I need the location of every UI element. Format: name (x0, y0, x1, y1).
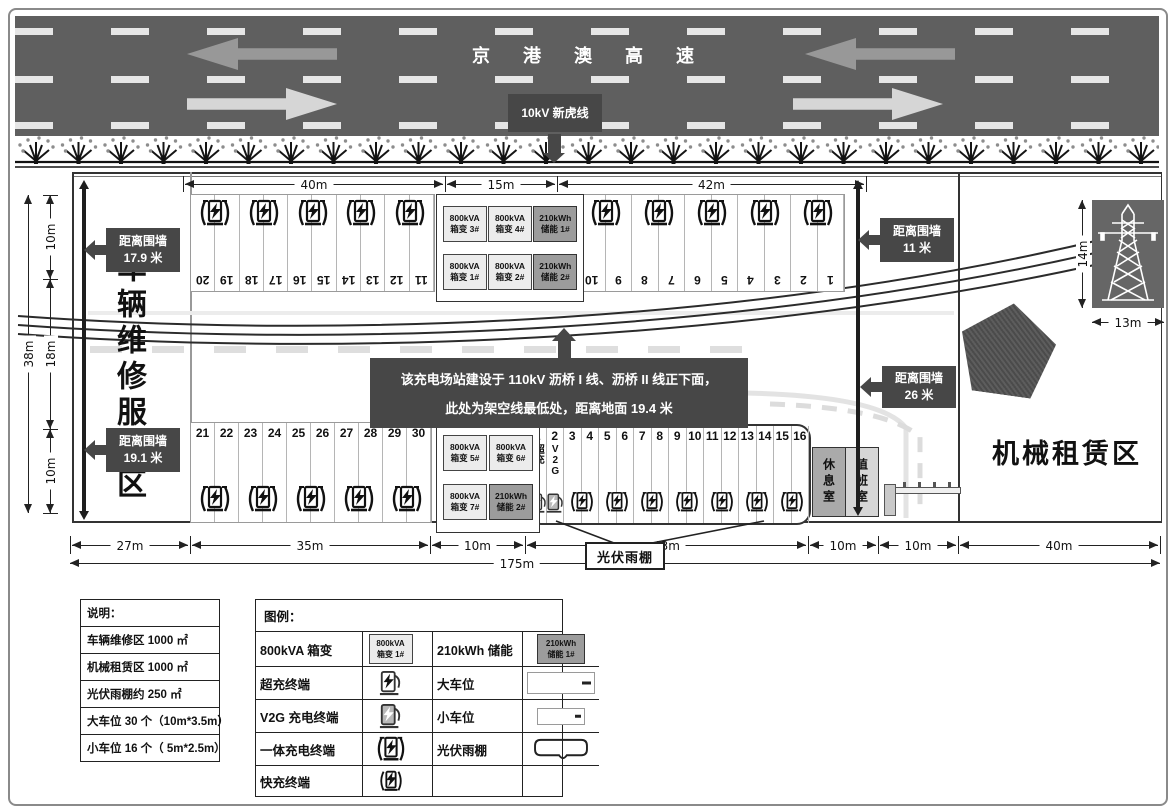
zone-divider-rental (958, 172, 960, 522)
dim-tower-width: 13m (1092, 322, 1164, 323)
notes-title: 说明： (81, 600, 219, 627)
legend-icon-cell (362, 700, 418, 733)
stall-number: 27 (340, 426, 353, 440)
stall-number: 16 (793, 429, 806, 443)
charger-icon-holder (569, 489, 595, 520)
canopy-label-text: 光伏雨棚 (597, 547, 653, 566)
v2g-charger-icon (546, 491, 565, 515)
charger-icon-holder (801, 198, 835, 233)
tree-icon (443, 136, 479, 164)
stall-number: 7 (639, 429, 646, 443)
dim-bottom-6: 40m (960, 545, 1158, 546)
tree-icon (698, 136, 734, 164)
stall-number: 13 (741, 429, 754, 443)
transmission-tower-box (1092, 200, 1164, 308)
charger-icon-holder (748, 198, 782, 233)
integrated-charger-icon (198, 198, 232, 228)
dim-label: 40m (1040, 539, 1079, 553)
equipment-label-bottom: 储能 1# (541, 224, 570, 235)
stall-number: 29 (388, 426, 401, 440)
v2g-charger-icon-holder (546, 491, 565, 520)
wall-distance-arrow-icon (860, 377, 884, 397)
parking-row-20-11: 20191817161514131211 (190, 194, 435, 292)
stall-number: 2 (551, 429, 558, 443)
dim-label: 38m (22, 336, 36, 373)
integrated-charger-icon (247, 198, 281, 228)
dim-bottom-5: 10m (880, 545, 956, 546)
tree-icon (61, 136, 97, 164)
integrated-charger-icon (393, 198, 427, 228)
equipment-label-top: 800kVA (450, 213, 480, 224)
stall-number: 26 (316, 426, 329, 440)
power-line-label: 10kV 新虎线 (508, 94, 602, 132)
stall-number: 21 (196, 426, 209, 440)
integrated-charger-icon (695, 198, 729, 228)
dim-top-40m: 40m (185, 184, 443, 185)
stall-type-label: V2G (550, 444, 560, 477)
transmission-tower-icon (1092, 200, 1164, 308)
dim-left-38m: 38m (28, 195, 29, 513)
power-line-label-pointer (548, 134, 561, 154)
integrated-charger-icon (198, 484, 232, 514)
dim-label: 10m (44, 219, 58, 256)
stall-number: 12 (390, 273, 403, 287)
stall-number: 14 (758, 429, 771, 443)
traffic-arrow-left-icon (805, 38, 955, 70)
dim-bottom-4: 10m (810, 545, 876, 546)
wall-distance-label-2: 距离围墙 19.1 米 (106, 428, 180, 472)
dim-label: 10m (899, 539, 938, 553)
tree-row (15, 134, 1159, 172)
machinery-area-label: 机械租赁区 (992, 432, 1142, 471)
dim-label: 40m (295, 178, 334, 192)
equipment-label-bottom: 箱变 3# (450, 224, 479, 235)
site-boundary-left (72, 172, 74, 522)
dim-label: 42m (692, 178, 731, 192)
wall-distance-arrow-icon (84, 440, 108, 460)
legend-icon-cell (362, 667, 418, 700)
lane-marking (15, 76, 1159, 83)
dim-tick (43, 513, 58, 514)
charger-icon-holder (709, 489, 735, 520)
dim-label: 18m (44, 336, 58, 373)
integrated-charger-icon (801, 198, 835, 228)
charger-icon-holder (390, 484, 424, 519)
annotation-arrow-tip (552, 328, 576, 341)
tree-icon (783, 136, 819, 164)
stall-number: 8 (641, 273, 648, 287)
dim-top-15m: 15m (447, 184, 555, 185)
dim-top-42m: 42m (559, 184, 864, 185)
tree-icon (1081, 136, 1117, 164)
rest-room-building: 休息室 (812, 447, 846, 517)
legend-spacer (418, 700, 432, 733)
charger-icon-holder (642, 198, 676, 233)
legend-label (432, 766, 522, 796)
tree-icon (401, 136, 437, 164)
site-plan-canvas: 京 港 澳 高 速 10kV 新虎线 (0, 0, 1174, 812)
stall-number: 11 (415, 273, 428, 287)
stall-number: 5 (721, 273, 728, 287)
stall-number: 22 (220, 426, 233, 440)
tree-icon (273, 136, 309, 164)
legend-label: 小车位 (432, 700, 522, 733)
equipment-area-top: 800kVA箱变 3#800kVA箱变 4#210kWh储能 1#800kVA箱… (436, 194, 584, 302)
dim-tick (866, 176, 867, 192)
tree-icon (1038, 136, 1074, 164)
canopy-label: 光伏雨棚 (585, 542, 665, 570)
power-line-label-pointer-tip (543, 153, 565, 163)
dim-label: 175m (494, 557, 541, 571)
stall-number: 7 (668, 273, 675, 287)
tree-icon (146, 136, 182, 164)
equipment-label-bottom: 箱变 2# (496, 272, 525, 283)
annotation-line-1: 该充电场站建设于 110kV 沥桥 I 线、沥桥 II 线正下面， (370, 369, 748, 388)
dim-left-inner-18m: 18m (50, 279, 51, 429)
large-parking-space-icon (527, 672, 595, 694)
equipment-label-top: 800kVA (450, 442, 480, 453)
dim-bottom-3: 43m (527, 545, 806, 546)
small-parking-space-icon (537, 708, 585, 725)
label-line: 距离围墙 (119, 233, 167, 250)
charger-icon-holder (294, 484, 328, 519)
tree-icon (316, 136, 352, 164)
equipment-label-top: 210kWh (495, 491, 527, 502)
stall-number: 8 (656, 429, 663, 443)
integrated-charger-icon (589, 198, 623, 228)
integrated-charger-icon (296, 198, 330, 228)
dim-bottom-1: 35m (192, 545, 428, 546)
charger-icon-holder (639, 489, 665, 520)
wall-distance-arrow-icon (84, 240, 108, 260)
stall-number: 2 (800, 273, 807, 287)
tree-icon (741, 136, 777, 164)
charger-icon-holder (695, 198, 729, 233)
highway-title: 京 港 澳 高 速 (430, 42, 750, 68)
aisle-edge-line (88, 311, 954, 315)
integrated-charger-icon (674, 489, 700, 515)
stall-number: 10 (585, 273, 598, 287)
transformer-sample-box: 800kVA箱变 1# (369, 634, 413, 664)
gate-barrier-rail (895, 487, 961, 494)
charger-icon-holder (344, 198, 378, 233)
stall-number: 19 (220, 273, 233, 287)
stall-number: 11 (706, 429, 719, 443)
tree-icon (868, 136, 904, 164)
equipment-label-bottom: 箱变 6# (497, 453, 526, 464)
legend-spacer (418, 733, 432, 766)
notes-row: 机械租赁区 1000 ㎡ (81, 654, 219, 681)
legend-icon-cell (522, 766, 599, 796)
transformer-box: 800kVA箱变 5# (443, 435, 487, 471)
legend-label: 800kVA 箱变 (256, 632, 362, 667)
dim-label: 27m (111, 539, 150, 553)
notes-row: 车辆维修区 1000 ㎡ (81, 627, 219, 654)
equipment-label-top: 800kVA (450, 261, 480, 272)
legend-label: V2G 充电终端 (256, 700, 362, 733)
stall-number: 17 (269, 273, 282, 287)
stall-number: 4 (747, 273, 754, 287)
charger-icon-holder (779, 489, 805, 520)
legend-icon-cell (522, 700, 599, 733)
integrated-charger-icon (642, 198, 676, 228)
equipment-label-top: 800kVA (495, 213, 525, 224)
legend-label: 快充终端 (256, 766, 362, 796)
stall-number: 14 (342, 273, 355, 287)
dim-label: 10m (458, 539, 497, 553)
stall-number: 15 (317, 273, 330, 287)
stall-number: 6 (621, 429, 628, 443)
v2g-charger-icon (379, 702, 403, 730)
annotation-arrow (558, 340, 571, 359)
stall-number: 24 (268, 426, 281, 440)
stall-number: 6 (694, 273, 701, 287)
annotation-line-2: 此处为架空线最低处，距离地面 19.4 米 (370, 398, 748, 417)
charger-icon-holder (296, 198, 330, 233)
gate-rail-post (948, 482, 951, 488)
label-line: 11 米 (903, 240, 931, 257)
transformer-box: 800kVA箱变 4# (488, 206, 532, 242)
stall-number: 20 (196, 273, 209, 287)
stall-number: 3 (774, 273, 781, 287)
equipment-label-top: 210kWh (539, 213, 571, 224)
tree-icon (358, 136, 394, 164)
integrated-charger-icon (748, 198, 782, 228)
stall-number: 18 (245, 273, 258, 287)
equipment-label-bottom: 箱变 4# (496, 224, 525, 235)
wall-distance-label-1: 距离围墙 17.9 米 (106, 228, 180, 272)
integrated-charger-icon (246, 484, 280, 514)
equipment-label-top: 800kVA (450, 491, 480, 502)
equipment-label-bottom: 箱变 5# (451, 453, 480, 464)
charger-icon-holder (247, 198, 281, 233)
storage-box: 210kWh储能 1# (533, 206, 577, 242)
dim-bottom-2: 10m (432, 545, 523, 546)
tree-icon (1123, 136, 1159, 164)
dim-tick (1160, 536, 1161, 554)
tree-icon (911, 136, 947, 164)
legend-label: 210kWh 储能 (432, 632, 522, 667)
dim-left-inner-10m: 10m (50, 429, 51, 513)
power-line-label-text: 10kV 新虎线 (521, 105, 588, 122)
integrated-charger-icon (744, 489, 770, 515)
legend-title: 图例： (256, 600, 562, 632)
stall-number: 12 (723, 429, 736, 443)
legend-label: 超充终端 (256, 667, 362, 700)
charger-icon-holder (198, 484, 232, 519)
label-line: 距离围墙 (893, 223, 941, 240)
traffic-arrow-right-icon (187, 88, 337, 120)
rest-room-label: 休息室 (821, 458, 838, 506)
notes-table: 说明： 车辆维修区 1000 ㎡机械租赁区 1000 ㎡光伏雨棚约 250 ㎡大… (80, 599, 220, 762)
station-annotation: 该充电场站建设于 110kV 沥桥 I 线、沥桥 II 线正下面， 此处为架空线… (370, 358, 748, 428)
tree-icon (571, 136, 607, 164)
legend-spacer (418, 667, 432, 700)
stall-number: 1 (827, 273, 834, 287)
stall-number: 25 (292, 426, 305, 440)
tree-icon (18, 136, 54, 164)
aisle-center-dashed-line (90, 346, 750, 353)
dim-label: 13m (1109, 316, 1148, 330)
stall-number: 9 (615, 273, 622, 287)
tree-icon (613, 136, 649, 164)
charger-icon-holder (744, 489, 770, 520)
charger-icon-holder (246, 484, 280, 519)
notes-row: 光伏雨棚约 250 ㎡ (81, 681, 219, 708)
charger-icon-holder (589, 198, 623, 233)
left-fence-wall (82, 188, 86, 512)
stall-number: 23 (244, 426, 257, 440)
storage-sample-box: 210kWh储能 1# (537, 634, 585, 664)
stall-number: 4 (586, 429, 593, 443)
transformer-box: 800kVA箱变 6# (489, 435, 533, 471)
legend-label: 光伏雨棚 (432, 733, 522, 766)
tree-icon (953, 136, 989, 164)
label-line: 距离围墙 (895, 370, 943, 387)
label-line: 26 米 (905, 387, 934, 404)
charger-icon-holder (604, 489, 630, 520)
notes-row: 小车位 16 个（ 5m*2.5m） (81, 735, 219, 761)
stall-number: 3 (569, 429, 576, 443)
equipment-area-bottom: 800kVA箱变 5#800kVA箱变 6#800kVA箱变 7#210kWh储… (436, 422, 540, 533)
tree-icon (188, 136, 224, 164)
pv-canopy-parking-row: 1超充2V2G345678910111213141516 (527, 424, 811, 525)
integrated-charger-icon (390, 484, 424, 514)
legend-label: 大车位 (432, 667, 522, 700)
legend-grid: 800kVA 箱变800kVA箱变 1#210kWh 储能210kWh储能 1#… (256, 632, 562, 796)
integrated-charger-icon (344, 198, 378, 228)
parking-row-21-30: 21222324252627282930 (190, 422, 432, 523)
tree-icon (656, 136, 692, 164)
gate-rail-post (918, 482, 921, 488)
charger-icon-holder (198, 198, 232, 233)
equipment-label-bottom: 箱变 1# (450, 272, 479, 283)
gate-rail-post (933, 482, 936, 488)
stall-number: 15 (776, 429, 789, 443)
dim-label: 10m (44, 453, 58, 490)
supercharger-icon (379, 669, 403, 697)
equipment-label-bottom: 储能 2# (541, 272, 570, 283)
integrated-charger-icon (779, 489, 805, 515)
wall-distance-arrow-icon (858, 230, 882, 250)
tree-icon (826, 136, 862, 164)
stall-number: 10 (688, 429, 701, 443)
tree-icon (996, 136, 1032, 164)
dim-label: 35m (291, 539, 330, 553)
wall-distance-label-3: 距离围墙 11 米 (880, 218, 954, 262)
legend-icon-cell: 210kWh储能 1# (522, 632, 599, 667)
dim-tower-height: 14m (1082, 200, 1083, 308)
equipment-label-top: 210kWh (539, 261, 571, 272)
tree-icon (486, 136, 522, 164)
traffic-arrow-left-icon (187, 38, 337, 70)
fast-charger-icon (377, 768, 405, 794)
transformer-box: 800kVA箱变 2# (488, 254, 532, 290)
legend-spacer (418, 632, 432, 667)
integrated-charger-icon (709, 489, 735, 515)
transformer-box: 800kVA箱变 1# (443, 254, 487, 290)
equipment-label-bottom: 箱变 7# (451, 502, 480, 513)
legend-icon-cell (522, 667, 599, 700)
dim-label: 15m (482, 178, 521, 192)
charger-icon-holder (393, 198, 427, 233)
legend-table: 图例： 800kVA 箱变800kVA箱变 1#210kWh 储能210kWh储… (255, 599, 563, 797)
dim-bottom-0: 27m (72, 545, 188, 546)
transformer-box: 800kVA箱变 7# (443, 484, 487, 520)
dim-label: 14m (1076, 236, 1090, 273)
equipment-label-top: 800kVA (496, 442, 526, 453)
dim-left-inner-10m: 10m (50, 195, 51, 279)
label-line: 距离围墙 (119, 433, 167, 450)
notes-row: 大车位 30 个（10m*3.5m） (81, 708, 219, 735)
label-line: 19.1 米 (124, 450, 163, 467)
storage-box: 210kWh储能 2# (489, 484, 533, 520)
legend-icon-cell (522, 733, 599, 766)
stall-number: 16 (293, 273, 306, 287)
lane-marking (15, 28, 1159, 35)
stall-number: 5 (604, 429, 611, 443)
stall-number: 28 (364, 426, 377, 440)
stall-number: 13 (366, 273, 379, 287)
integrated-charger-icon (639, 489, 665, 515)
transformer-box: 800kVA箱变 3# (443, 206, 487, 242)
canopy-shape-icon (532, 737, 590, 762)
legend-spacer (418, 766, 432, 796)
traffic-arrow-right-icon (793, 88, 943, 120)
site-boundary-top (72, 172, 1162, 174)
storage-box: 210kWh储能 2# (533, 254, 577, 290)
integrated-charger-icon (342, 484, 376, 514)
legend-icon-cell (362, 766, 418, 796)
charger-icon-holder (674, 489, 700, 520)
integrated-charger-icon (375, 735, 407, 763)
equipment-label-top: 800kVA (495, 261, 525, 272)
integrated-charger-icon (569, 489, 595, 515)
site-boundary-top2 (72, 176, 1162, 177)
stall-number: 9 (674, 429, 681, 443)
integrated-charger-icon (604, 489, 630, 515)
tree-icon (231, 136, 267, 164)
dim-label: 10m (824, 539, 863, 553)
parking-row-10-1: 10987654321 (578, 194, 845, 292)
charger-icon-holder (342, 484, 376, 519)
equipment-label-bottom: 储能 2# (497, 502, 526, 513)
legend-icon-cell (362, 733, 418, 766)
legend-label: 一体充电终端 (256, 733, 362, 766)
tree-icon (103, 136, 139, 164)
integrated-charger-icon (294, 484, 328, 514)
gate-rail-post (903, 482, 906, 488)
wall-distance-label-4: 距离围墙 26 米 (882, 366, 956, 408)
stall-number: 30 (412, 426, 425, 440)
legend-icon-cell: 800kVA箱变 1# (362, 632, 418, 667)
label-line: 17.9 米 (124, 250, 163, 267)
